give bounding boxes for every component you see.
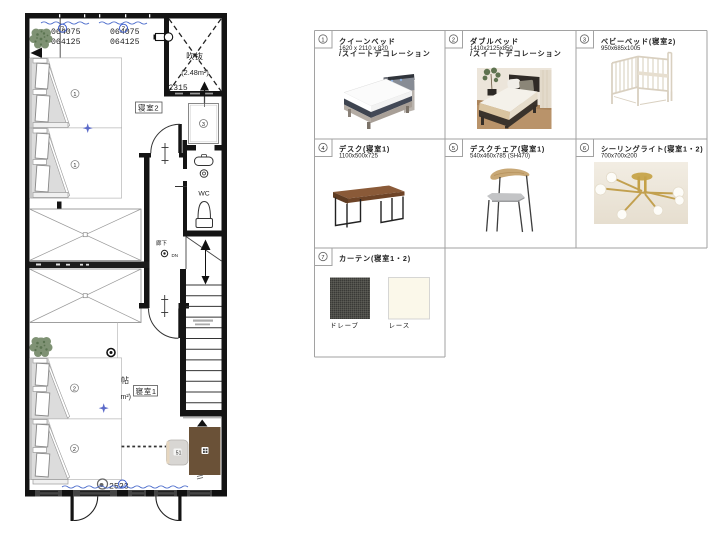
svg-text:ドレープ: ドレープ — [330, 322, 359, 330]
svg-text:1: 1 — [73, 92, 76, 98]
svg-text:1: 1 — [73, 163, 76, 169]
svg-text:(2.48m²): (2.48m²) — [181, 68, 209, 77]
svg-text:デスクチェア(寝室1): デスクチェア(寝室1) — [470, 144, 545, 153]
svg-text:4: 4 — [321, 146, 324, 152]
svg-text:寝室2: 寝室2 — [138, 103, 159, 113]
svg-text:2: 2 — [73, 386, 76, 392]
svg-text:7: 7 — [321, 255, 324, 261]
svg-text:3: 3 — [202, 122, 205, 128]
svg-text:064125: 064125 — [51, 38, 81, 47]
svg-text:WC: WC — [198, 191, 209, 198]
svg-text:シーリングライト(寝室1・2): シーリングライト(寝室1・2) — [601, 144, 703, 153]
svg-text:m²): m²) — [121, 394, 132, 401]
svg-text:レース: レース — [389, 322, 411, 330]
svg-text:帖: 帖 — [121, 375, 129, 385]
svg-text:1100x500x725: 1100x500x725 — [339, 153, 379, 159]
svg-text:950x685x1005: 950x685x1005 — [601, 46, 641, 52]
svg-text:2315: 2315 — [169, 84, 188, 93]
svg-text:1: 1 — [321, 37, 324, 43]
svg-text:/スイートデコレーション: /スイートデコレーション — [339, 49, 431, 58]
svg-text:51: 51 — [176, 450, 182, 456]
svg-text:700x700x200: 700x700x200 — [601, 153, 638, 159]
svg-text:ダブルベッド: ダブルベッド — [470, 37, 519, 46]
svg-text:2: 2 — [73, 447, 76, 453]
svg-text:吹抜: 吹抜 — [186, 51, 203, 61]
svg-text:064075: 064075 — [51, 28, 81, 37]
svg-text:寝室1: 寝室1 — [136, 386, 157, 396]
svg-text:DN: DN — [172, 253, 179, 258]
svg-text:カーテン(寝室1・2): カーテン(寝室1・2) — [339, 254, 411, 263]
svg-text:6: 6 — [583, 146, 586, 152]
svg-text:デスク(寝室1): デスク(寝室1) — [339, 144, 390, 153]
svg-text:2: 2 — [452, 37, 455, 43]
svg-text:540x460x785 (SH470): 540x460x785 (SH470) — [470, 153, 530, 159]
svg-text:クイーンベッド: クイーンベッド — [339, 37, 396, 46]
svg-text:廊下: 廊下 — [156, 239, 168, 247]
svg-text:/スイートデコレーション: /スイートデコレーション — [470, 49, 562, 58]
svg-text:5: 5 — [452, 146, 455, 152]
svg-text:064125: 064125 — [110, 38, 140, 47]
svg-text:3: 3 — [583, 37, 586, 43]
svg-text:ベビーベッド(寝室2): ベビーベッド(寝室2) — [601, 37, 676, 46]
